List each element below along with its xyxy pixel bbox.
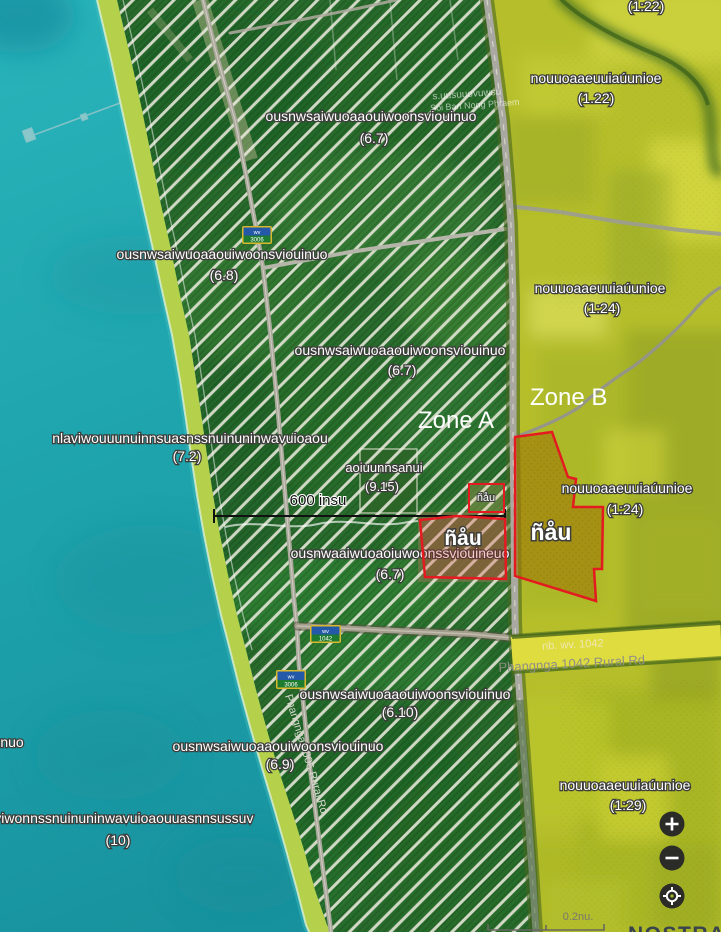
svg-text:ñåu: ñåu xyxy=(477,492,495,504)
svg-text:ousnwsaiwuoaaouiwoonsviouinuo: ousnwsaiwuoaaouiwoonsviouinuo xyxy=(117,246,328,262)
svg-text:NOSTRA: NOSTRA xyxy=(628,923,721,932)
svg-text:(6.7): (6.7) xyxy=(388,362,417,378)
svg-text:(7.2): (7.2) xyxy=(173,448,202,464)
svg-text:wv: wv xyxy=(287,675,295,681)
svg-text:(6.8): (6.8) xyxy=(210,267,239,283)
svg-text:1042: 1042 xyxy=(319,637,333,643)
svg-text:ousnwsaiwuoaaouiwoonsviouinuo: ousnwsaiwuoaaouiwoonsviouinuo xyxy=(300,686,511,702)
svg-text:3006: 3006 xyxy=(284,683,298,689)
svg-text:nuo: nuo xyxy=(0,734,24,750)
svg-text:ousnwsaiwuoaaouiwoonsviouinuo: ousnwsaiwuoaaouiwoonsviouinuo xyxy=(295,342,506,358)
svg-text:3006: 3006 xyxy=(250,238,264,244)
svg-text:Zone A: Zone A xyxy=(418,407,494,434)
svg-text:nlaviwouuunuinnsuasnssnuinunin: nlaviwouuunuinnsuasnssnuinuninwavuioaou xyxy=(52,430,328,446)
svg-text:(6.10): (6.10) xyxy=(382,704,419,720)
svg-text:(1.22): (1.22) xyxy=(578,90,615,106)
svg-text:aviwonnssnuinuninwavuioaouuasn: aviwonnssnuinuninwavuioaouuasnnsussuv xyxy=(0,810,253,826)
svg-text:(6.7): (6.7) xyxy=(360,130,389,146)
svg-text:0.2nu.: 0.2nu. xyxy=(563,911,594,923)
svg-text:nouuoaaeuuiaúunioe: nouuoaaeuuiaúunioe xyxy=(560,777,691,793)
svg-text:(9.15): (9.15) xyxy=(365,479,399,494)
svg-text:(1:22): (1:22) xyxy=(628,0,665,14)
svg-text:ñåu: ñåu xyxy=(531,519,572,545)
svg-text:aoiuunnsanui: aoiuunnsanui xyxy=(345,460,422,475)
svg-text:600 insu: 600 insu xyxy=(290,492,347,509)
svg-text:ousnwsaiwuoaaouiwoonsviouinuo: ousnwsaiwuoaaouiwoonsviouinuo xyxy=(266,108,477,124)
svg-text:wv: wv xyxy=(321,629,329,635)
svg-text:nouuoaaeuuiaúunioe: nouuoaaeuuiaúunioe xyxy=(531,70,662,86)
svg-text:(6.9): (6.9) xyxy=(266,756,295,772)
svg-text:(1:24): (1:24) xyxy=(607,501,644,517)
svg-text:(10): (10) xyxy=(106,832,131,848)
svg-text:ousnwsaiwuoaaouiwoonsviouinuo: ousnwsaiwuoaaouiwoonsviouinuo xyxy=(173,738,384,754)
svg-text:(6.7): (6.7) xyxy=(376,566,405,582)
svg-text:nouuoaaeuuiaúunioe: nouuoaaeuuiaúunioe xyxy=(535,280,666,296)
svg-text:(1:24): (1:24) xyxy=(584,300,621,316)
svg-text:nouuoaaeuuiaúunioe: nouuoaaeuuiaúunioe xyxy=(562,480,693,496)
svg-text:ñåu: ñåu xyxy=(444,527,481,550)
svg-text:wv: wv xyxy=(253,230,261,236)
svg-text:Zone B: Zone B xyxy=(530,384,607,411)
svg-text:(1:29): (1:29) xyxy=(610,797,647,813)
